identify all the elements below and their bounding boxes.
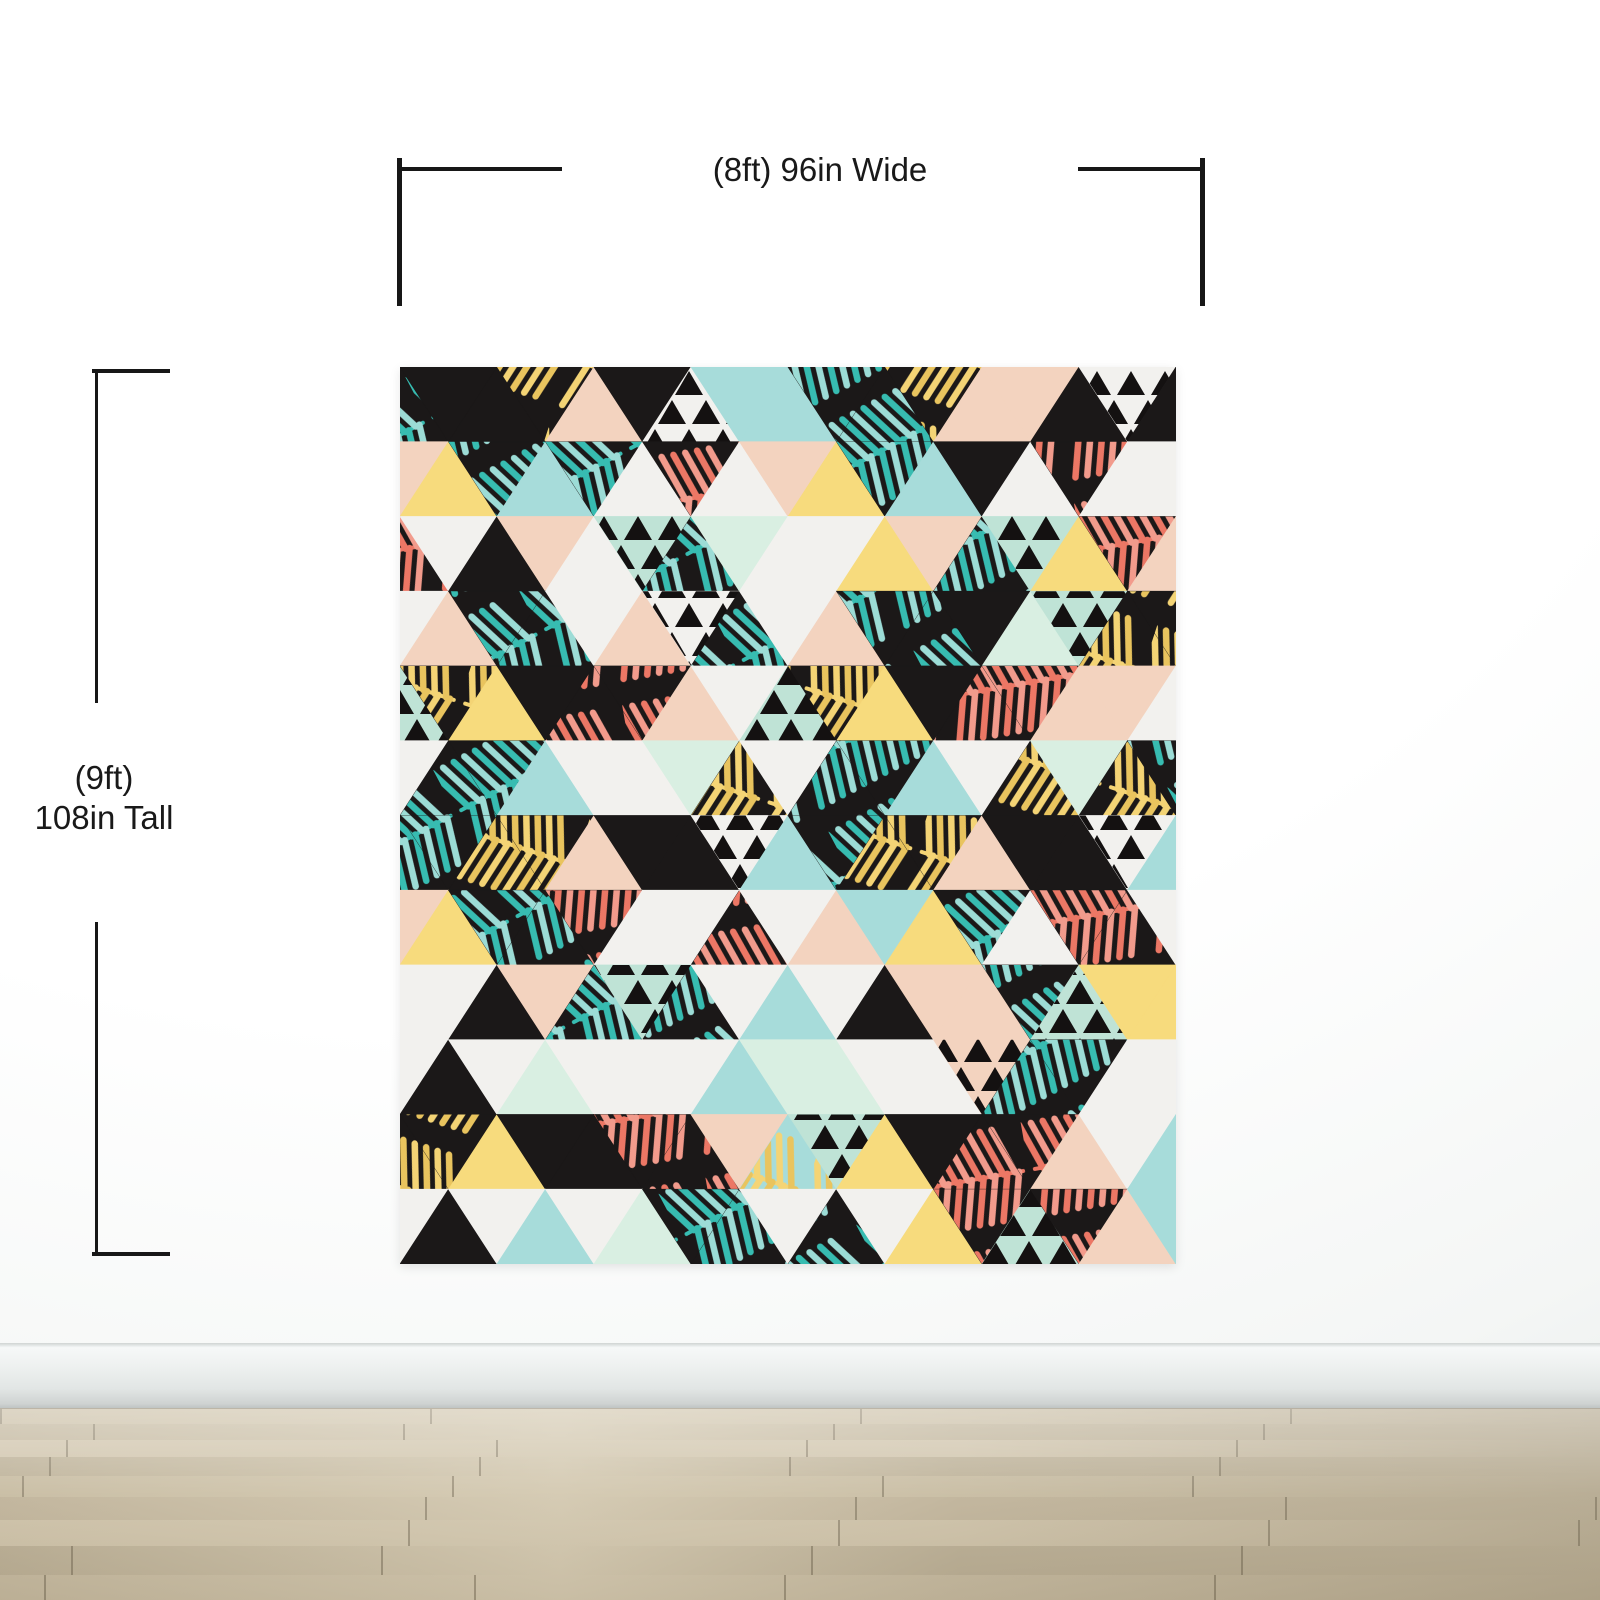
floor-plank-row bbox=[0, 1545, 1600, 1575]
wall-mural bbox=[400, 367, 1176, 1264]
floor-plank-row bbox=[0, 1574, 1600, 1600]
floor-plank-seam bbox=[1263, 1424, 1265, 1440]
floor-plank-seam bbox=[882, 1476, 884, 1497]
floor-plank-seam bbox=[1241, 1546, 1243, 1575]
height-dim-label-line2: 108in Tall bbox=[18, 798, 190, 838]
wood-floor bbox=[0, 1408, 1600, 1600]
floor-plank-row bbox=[0, 1439, 1600, 1457]
product-mockup-scene: (8ft) 96in Wide (9ft) 108in Tall bbox=[0, 0, 1600, 1600]
floor-plank-seam bbox=[1578, 1520, 1580, 1546]
floor-plank-row bbox=[0, 1475, 1600, 1497]
floor-plank-seam bbox=[838, 1520, 840, 1546]
height-dim-label: (9ft) 108in Tall bbox=[18, 758, 190, 839]
floor-plank-seam bbox=[22, 1476, 24, 1497]
floor-plank-seam bbox=[381, 1546, 383, 1575]
height-dim-line-upper bbox=[95, 369, 98, 703]
floor-plank-seam bbox=[408, 1520, 410, 1546]
floor-plank-seam bbox=[1595, 1497, 1597, 1520]
floor-plank-seam bbox=[66, 1440, 68, 1457]
width-dim-line-right bbox=[1078, 167, 1205, 171]
floor-plank-seam bbox=[833, 1424, 835, 1440]
floor-plank-seam bbox=[1290, 1409, 1292, 1424]
floor-plank-seam bbox=[479, 1457, 481, 1476]
floor-plank-seam bbox=[474, 1575, 476, 1600]
width-dim-label: (8ft) 96in Wide bbox=[560, 150, 1080, 190]
floor-plank-seam bbox=[1192, 1476, 1194, 1497]
floor-plank-row bbox=[0, 1519, 1600, 1546]
floor-plank-seam bbox=[452, 1476, 454, 1497]
height-dim-tick-bottom bbox=[92, 1252, 170, 1256]
height-dim-tick-top bbox=[92, 369, 170, 373]
floor-plank-seam bbox=[0, 1409, 2, 1424]
floor-plank-seam bbox=[1214, 1575, 1216, 1600]
floor-plank-seam bbox=[403, 1424, 405, 1440]
floor-plank-seam bbox=[1219, 1457, 1221, 1476]
height-dim-label-line1: (9ft) bbox=[18, 758, 190, 798]
floor-plank-seam bbox=[1236, 1440, 1238, 1457]
floor-plank-seam bbox=[44, 1575, 46, 1600]
width-dim-line-left bbox=[398, 167, 562, 171]
width-dim-tick-left bbox=[397, 158, 402, 306]
floor-plank-seam bbox=[425, 1497, 427, 1520]
floor-plank-seam bbox=[860, 1409, 862, 1424]
floor-plank-seam bbox=[1268, 1520, 1270, 1546]
floor-plank-seam bbox=[430, 1409, 432, 1424]
floor-plank-seam bbox=[789, 1457, 791, 1476]
floor-plank-seam bbox=[49, 1457, 51, 1476]
baseboard bbox=[0, 1343, 1600, 1408]
floor-plank-seam bbox=[93, 1424, 95, 1440]
width-dim-tick-right bbox=[1200, 158, 1205, 306]
floor-plank-seam bbox=[1285, 1497, 1287, 1520]
floor-plank-row bbox=[0, 1408, 1600, 1424]
floor-plank-row bbox=[0, 1496, 1600, 1520]
floor-plank-seam bbox=[496, 1440, 498, 1457]
mural-pattern-svg bbox=[400, 367, 1176, 1264]
floor-plank-seam bbox=[855, 1497, 857, 1520]
floor-plank-row bbox=[0, 1423, 1600, 1440]
floor-plank-seam bbox=[784, 1575, 786, 1600]
height-dim-line-lower bbox=[95, 922, 98, 1255]
floor-plank-seam bbox=[811, 1546, 813, 1575]
floor-plank-seam bbox=[71, 1546, 73, 1575]
floor-plank-seam bbox=[806, 1440, 808, 1457]
floor-plank-row bbox=[0, 1456, 1600, 1476]
